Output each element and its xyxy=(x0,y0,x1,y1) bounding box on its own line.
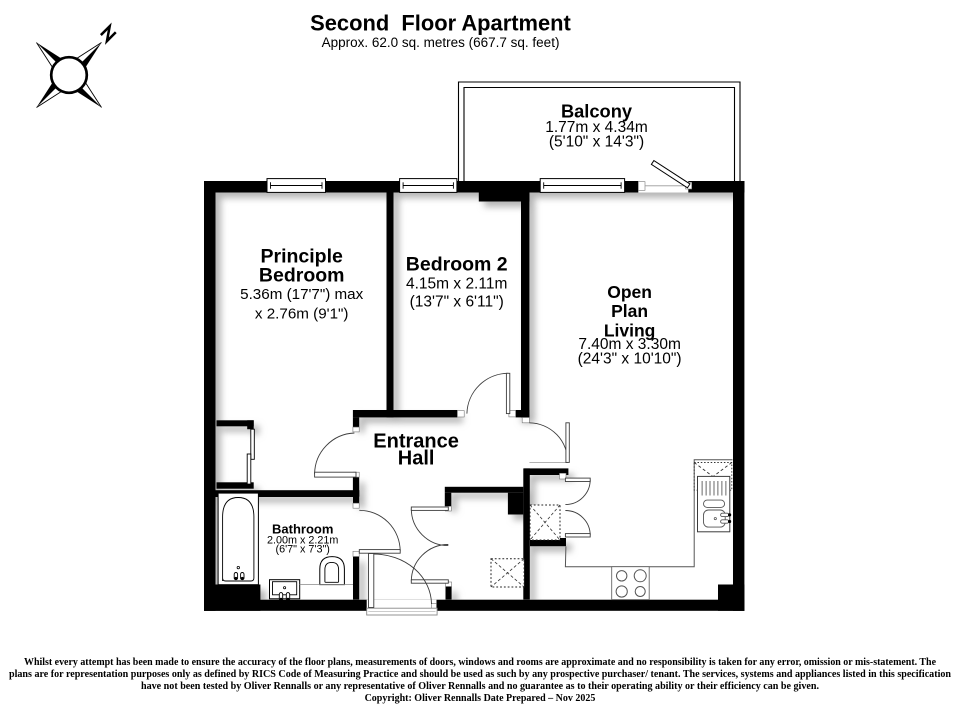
svg-text:Plan: Plan xyxy=(611,301,648,321)
svg-text:Bedroom 2: Bedroom 2 xyxy=(406,254,508,276)
svg-text:x 2.76m (9'1"): x 2.76m (9'1") xyxy=(255,305,349,322)
svg-text:plans are for representation p: plans are for representation purposes on… xyxy=(9,669,951,680)
svg-text:5.36m (17'7") max: 5.36m (17'7") max xyxy=(240,286,363,303)
svg-text:Copyright: Oliver Rennalls Dat: Copyright: Oliver Rennalls Date Prepared… xyxy=(365,693,596,704)
svg-text:(6'7" x 7'3"): (6'7" x 7'3") xyxy=(275,543,329,555)
svg-text:Approx. 62.0 sq. metres (667.7: Approx. 62.0 sq. metres (667.7 sq. feet) xyxy=(322,35,560,50)
svg-text:(5'10" x 14'3"): (5'10" x 14'3") xyxy=(549,133,644,150)
svg-text:Open: Open xyxy=(607,282,652,302)
svg-text:4.15m x 2.11m: 4.15m x 2.11m xyxy=(406,276,507,293)
svg-text:(13'7" x 6'11"): (13'7" x 6'11") xyxy=(410,294,504,311)
svg-text:Second Floor Apartment: Second Floor Apartment xyxy=(310,11,571,36)
svg-text:Hall: Hall xyxy=(398,448,435,470)
svg-text:Bedroom: Bedroom xyxy=(259,265,345,287)
svg-text:have not been tested by Oliver: have not been tested by Oliver Rennalls … xyxy=(141,681,819,692)
svg-text:Whilst every attempt has been: Whilst every attempt has been made to en… xyxy=(24,657,937,668)
svg-text:(24'3" x 10'10"): (24'3" x 10'10") xyxy=(578,350,682,367)
